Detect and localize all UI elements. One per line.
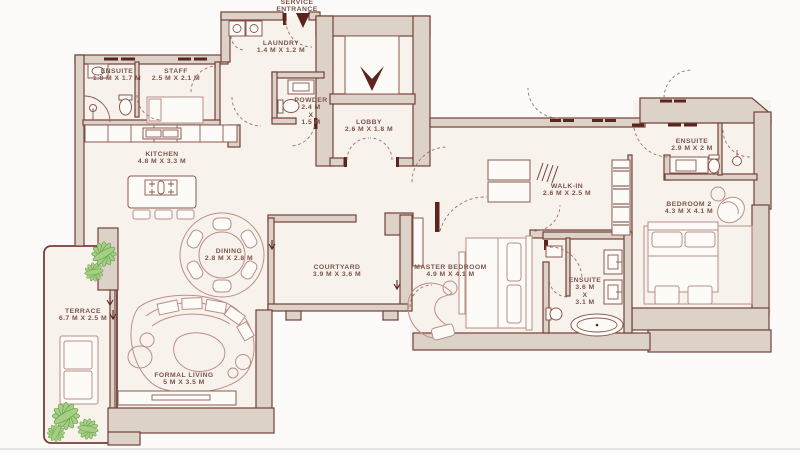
room-label-terrace: TERRACE 6.7 M X 2.5 M [43, 308, 123, 323]
room-label-walkin: WALK-IN 2.6 M X 2.5 M [527, 183, 607, 198]
terrace-furniture [60, 336, 98, 404]
sink [288, 80, 314, 94]
room-name: KITCHEN [122, 151, 202, 158]
tv-console [118, 391, 236, 405]
room-name: FORMAL LIVING [144, 372, 224, 379]
room-dimensions: 2.6 M X 2.5 M [527, 190, 607, 197]
room-dimensions: 4.8 M X 3.3 M [122, 158, 202, 165]
room-dimensions: 1.4 M X 1.2 M [241, 47, 321, 54]
room-dimensions: 4.3 M X 4.1 M [649, 208, 729, 215]
elevator [345, 36, 399, 94]
room-name: WALK-IN [527, 183, 607, 190]
room-label-courtyard: COURTYARD 3.9 M X 3.6 M [297, 264, 377, 279]
room-name: BEDROOM 2 [649, 201, 729, 208]
room-dimensions: 6.7 M X 2.5 M [43, 315, 123, 322]
laundry-appliances [229, 21, 262, 36]
room-label-staff: STAFF 2.5 M X 2.1 M [136, 68, 216, 83]
room-label-kitchen: KITCHEN 4.8 M X 3.3 M [122, 151, 202, 166]
toilet [709, 159, 720, 173]
room-name: DINING [189, 248, 269, 255]
room-dimensions: 5 M X 3.5 M [144, 379, 224, 386]
room-label-formal-living: FORMAL LIVING 5 M X 3.5 M [144, 372, 224, 387]
room-name: MASTER BEDROOM [408, 264, 493, 271]
room-label-dining: DINING 2.8 M X 2.8 M [189, 248, 269, 263]
page-bottom-divider [0, 448, 800, 450]
room-label-bedroom2: BEDROOM 2 4.3 M X 4.1 M [649, 201, 729, 216]
room-name: LAUNDRY [241, 40, 321, 47]
room-dimensions: 3.1 M [560, 299, 610, 306]
shower-head [733, 157, 742, 166]
room-name: POWDER [286, 97, 336, 104]
entrance-line: ENTRANCE [257, 6, 337, 13]
room-dimensions: 2.8 M X 2.8 M [189, 255, 269, 262]
room-name: LOBBY [329, 119, 409, 126]
room-dimensions: 4.9 M X 4.1 M [408, 271, 493, 278]
label-service-entrance: SERVICE ENTRANCE [257, 0, 337, 14]
room-dimensions: 3.9 M X 3.6 M [297, 271, 377, 278]
room-label-master-bedroom: MASTER BEDROOM 4.9 M X 4.1 M [408, 264, 493, 279]
room-name: ENSUITE [652, 138, 732, 145]
room-dimensions: 2.6 M X 1.8 M [329, 126, 409, 133]
room-name: STAFF [136, 68, 216, 75]
room-label-ensuite-bedroom2: ENSUITE 2.9 M X 2 M [652, 138, 732, 153]
room-name: ENSUITE [560, 277, 610, 284]
room-name: COURTYARD [297, 264, 377, 271]
room-dimensions: 2.5 M X 2.1 M [136, 75, 216, 82]
room-label-laundry: LAUNDRY 1.4 M X 1.2 M [241, 40, 321, 55]
room-name: TERRACE [43, 308, 123, 315]
room-dimensions: X [560, 292, 610, 299]
room-label-ensuite-master: ENSUITE 3.6 M X 3.1 M [560, 277, 610, 307]
toilet [550, 308, 562, 320]
room-dimensions: 2.9 M X 2 M [652, 145, 732, 152]
floor-plan-page: SERVICE ENTRANCE LAUNDRY 1.4 M X 1.2 M E… [0, 0, 800, 454]
room-dimensions: 3.6 M [560, 284, 610, 291]
room-label-lobby: LOBBY 2.6 M X 1.8 M [329, 119, 409, 134]
room-dimensions: 2.4 M [286, 104, 336, 111]
